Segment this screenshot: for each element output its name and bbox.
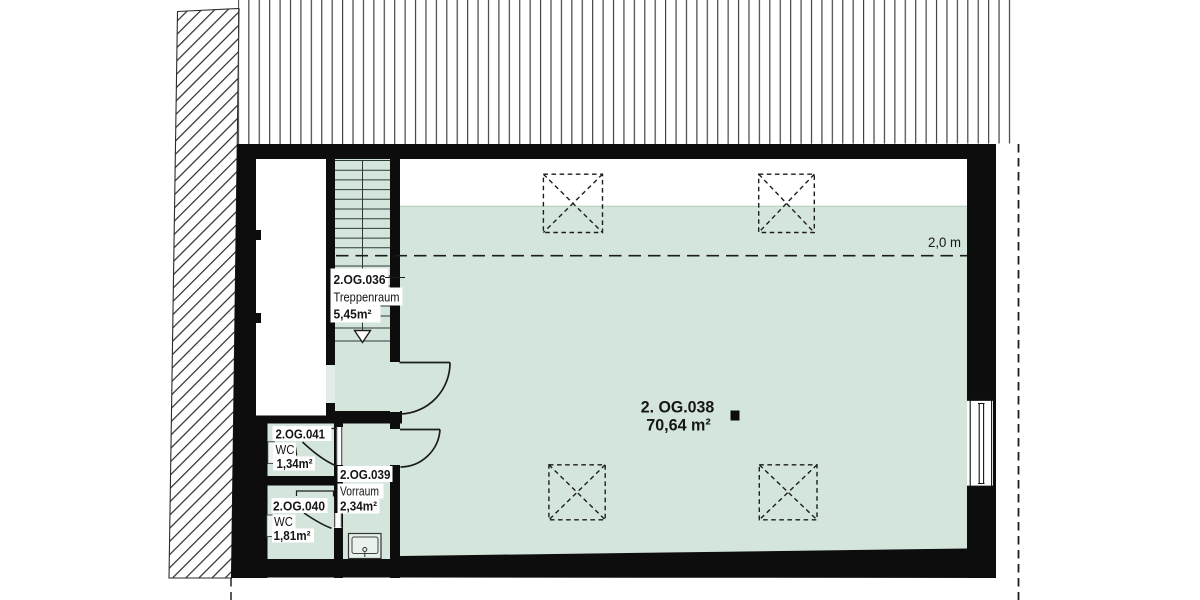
svg-text:Vorraum: Vorraum (340, 484, 379, 499)
svg-text:Treppenraum: Treppenraum (334, 290, 400, 305)
svg-text:2.OG.036: 2.OG.036 (334, 272, 386, 287)
svg-text:2,34m²: 2,34m² (340, 499, 377, 514)
svg-text:2.OG.041: 2.OG.041 (276, 427, 326, 442)
svg-text:2.OG.039: 2.OG.039 (340, 467, 391, 482)
svg-text:2,0 m: 2,0 m (928, 235, 961, 250)
svg-text:2. OG.038: 2. OG.038 (641, 399, 715, 417)
svg-text:5,45m²: 5,45m² (334, 307, 372, 322)
svg-text:70,64 m²: 70,64 m² (646, 417, 711, 435)
svg-text:1,81m²: 1,81m² (274, 528, 311, 543)
svg-text:1,34m²: 1,34m² (277, 456, 313, 471)
svg-text:2.OG.040: 2.OG.040 (273, 499, 325, 514)
svg-text:WC: WC (274, 514, 293, 529)
svg-text:WC: WC (276, 442, 295, 457)
